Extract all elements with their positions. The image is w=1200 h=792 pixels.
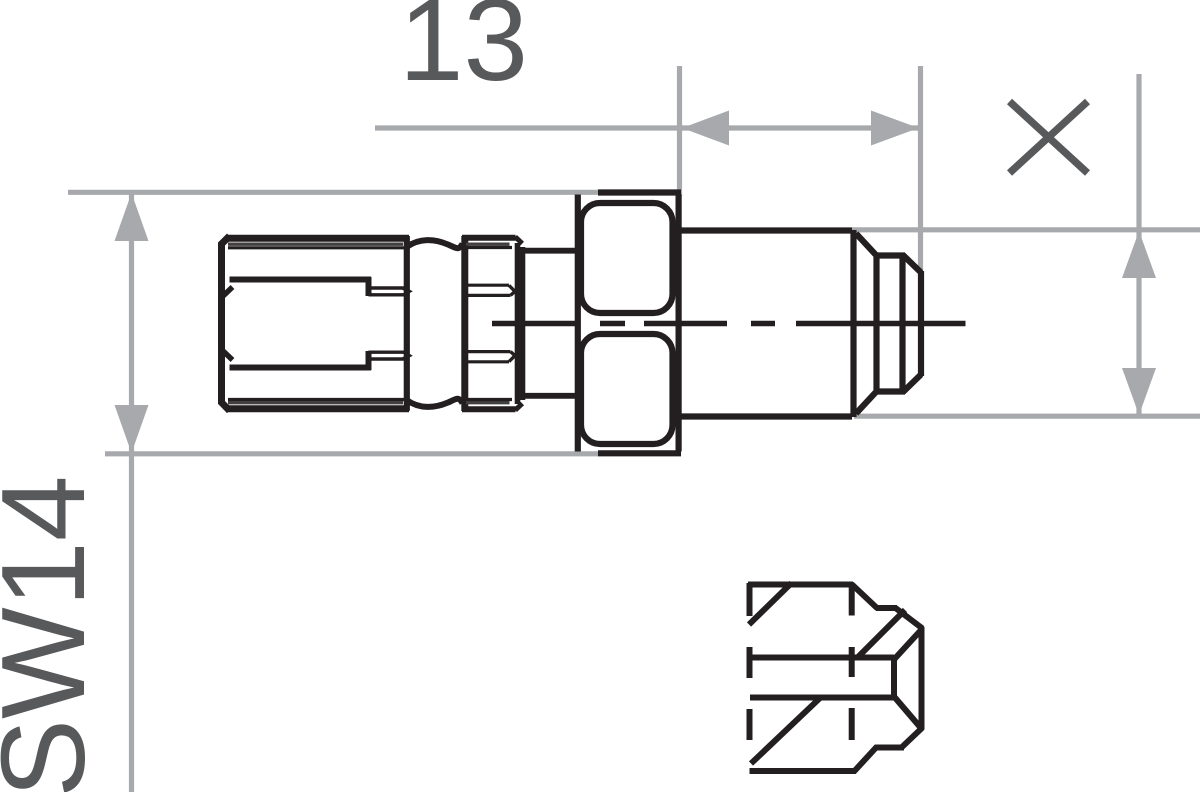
svg-text:13: 13 bbox=[399, 0, 528, 105]
svg-text:SW14: SW14 bbox=[0, 475, 110, 792]
